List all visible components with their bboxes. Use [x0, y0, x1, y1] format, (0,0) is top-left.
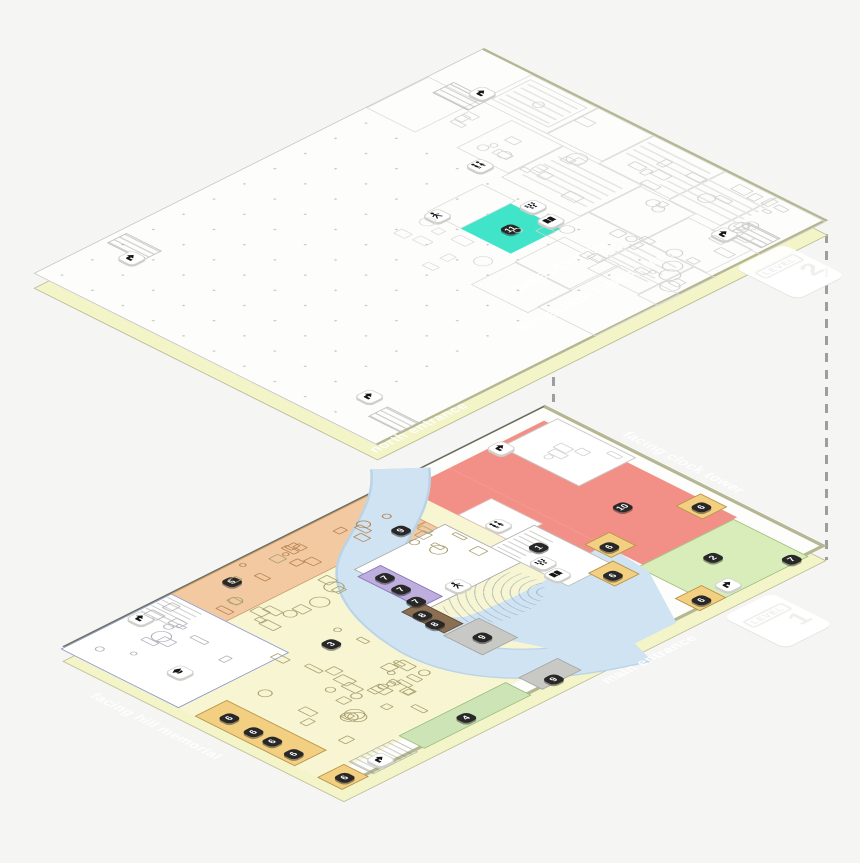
room-marker-label: 6	[603, 544, 616, 550]
level2-plan: RECEPTIONCONF.RESEARCH LIBRARIANS11	[33, 48, 828, 445]
room-marker-label: 9	[395, 527, 408, 533]
room-marker-label: 6	[695, 597, 708, 603]
level1-plan: north entrancefacing clock towerfacing h…	[62, 405, 826, 787]
room-marker-label: 8	[416, 612, 429, 618]
room-marker-label: 9	[476, 634, 489, 640]
room-marker-label: 7	[410, 599, 423, 605]
room-marker-label: 7	[785, 557, 798, 563]
room-marker-label: 6	[266, 738, 279, 744]
room-marker-label: 6	[223, 715, 236, 721]
room-marker-label: 4	[460, 715, 473, 721]
room-marker-label: 6	[607, 573, 620, 579]
room-marker-label: 6	[247, 729, 260, 735]
room-marker-label: 3	[325, 641, 338, 647]
room-marker-label: 7	[395, 586, 408, 592]
isometric-floorplan-scene: RECEPTIONCONF.RESEARCH LIBRARIANS11 LEVE…	[0, 0, 860, 863]
room-marker-label: 6	[338, 775, 351, 781]
room-marker-label: 1	[532, 544, 545, 550]
room-marker-label: 6	[288, 751, 301, 757]
room-marker-label: 8	[429, 621, 442, 627]
room-marker-label: 7	[379, 575, 392, 581]
room-marker-label: 6	[695, 504, 708, 510]
room-marker-label: 9	[548, 676, 561, 682]
room-marker-label: 10	[614, 503, 631, 512]
room-marker-label: 2	[707, 555, 720, 561]
